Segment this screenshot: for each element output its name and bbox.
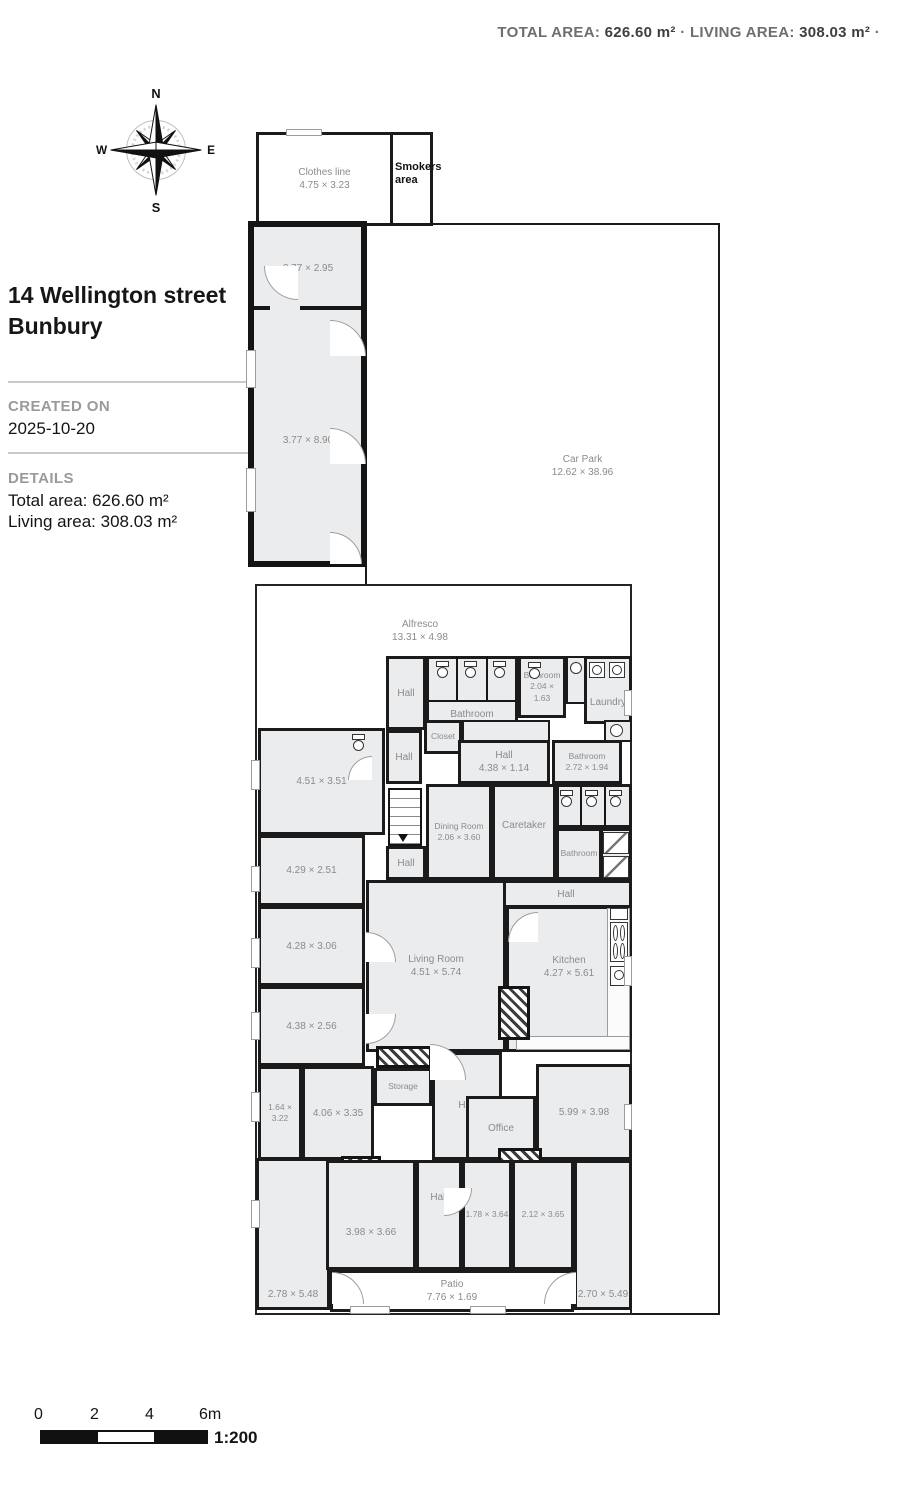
room-429-251: 4.29 × 2.51: [258, 835, 365, 906]
room-niche: [462, 720, 550, 742]
room-hall-kitchen: Hall: [500, 880, 632, 908]
address-line-1: 14 Wellington street: [8, 280, 258, 311]
toilet-icon: [464, 661, 478, 679]
separator-dot: ·: [680, 24, 685, 41]
room-label: Smokers area: [395, 161, 451, 187]
created-on-label: CREATED ON: [8, 398, 110, 415]
room-599-398: 5.99 × 3.98: [536, 1064, 632, 1160]
shower-icon: [603, 856, 629, 878]
chimney-hatch: [498, 986, 530, 1040]
room-bathroom-272: Bathroom2.72 × 1.94: [552, 740, 622, 784]
basin-icon: [610, 724, 623, 737]
room-270-549: 2.70 × 5.49: [574, 1160, 632, 1310]
toilet-icon: [528, 662, 542, 680]
wall: [580, 786, 582, 826]
details-label: DETAILS: [8, 470, 74, 487]
toilet-icon: [609, 790, 623, 808]
compass-east-label: E: [207, 143, 215, 157]
scale-ratio: 1:200: [214, 1428, 257, 1448]
room-storage: Storage: [374, 1068, 432, 1106]
chimney-hatch: [376, 1046, 432, 1068]
room-428-306: 4.28 × 3.06: [258, 906, 365, 986]
window: [251, 1012, 260, 1040]
toilet-icon: [493, 661, 507, 679]
room-278-548: 2.78 × 5.48: [256, 1158, 330, 1310]
compass-rose-icon: N E S W: [95, 84, 217, 216]
room-caretaker: Caretaker: [492, 784, 556, 880]
kitchen-counter: [516, 1036, 630, 1050]
header-area-summary: TOTAL AREA: 626.60 m² · LIVING AREA: 308…: [400, 24, 880, 41]
address-line-2: Bunbury: [8, 311, 258, 342]
room-406-335: 4.06 × 3.35: [302, 1066, 374, 1160]
shower-icon: [603, 832, 629, 854]
room-438-256: 4.38 × 2.56: [258, 986, 365, 1066]
trailing-dot: ·: [875, 24, 880, 41]
room-164-322: 1.64 × 3.22: [258, 1066, 302, 1160]
toilet-icon: [436, 661, 450, 679]
room-hall-stairs: Hall: [386, 846, 426, 880]
toilet-icon: [352, 734, 366, 752]
room-label: Clothes line4.75 × 3.23: [298, 166, 350, 192]
room-dining: Dining Room2.06 × 3.60: [426, 784, 492, 880]
wall: [604, 786, 606, 826]
room-hall-bottom: Hall: [416, 1160, 462, 1270]
room-closet: Closet: [424, 720, 462, 754]
window: [246, 350, 256, 388]
room-hall-438: Hall4.38 × 1.14: [458, 740, 550, 784]
scale-bar: [40, 1430, 208, 1444]
room-hall-top: Hall: [386, 656, 426, 730]
window: [350, 1306, 390, 1314]
compass-west-label: W: [96, 143, 108, 157]
window: [470, 1306, 506, 1314]
living-area-value: 308.03 m²: [799, 24, 870, 41]
window: [624, 1104, 632, 1130]
window: [624, 690, 632, 716]
toilet-icon: [560, 790, 574, 808]
total-area-label: TOTAL AREA:: [497, 24, 600, 41]
stairs-arrow-icon: [398, 834, 408, 842]
washer-icon: [589, 662, 605, 678]
room-smokers-area: Smokers area: [390, 132, 433, 226]
window: [246, 468, 256, 512]
room-bathroom-mid: Bathroom: [556, 828, 602, 880]
room-clothes-line: Clothes line4.75 × 3.23: [256, 132, 393, 226]
total-area-value: 626.60 m²: [605, 24, 676, 41]
room-label: Car Park12.62 × 38.96: [552, 453, 613, 479]
created-on-value: 2025-10-20: [8, 419, 95, 439]
wall: [486, 656, 488, 702]
window: [286, 129, 322, 136]
sink-icon: [610, 908, 628, 920]
living-area-label: LIVING AREA:: [690, 24, 795, 41]
scale-tick-2: 2: [90, 1406, 99, 1424]
room-212-365: 2.12 × 3.65: [512, 1160, 574, 1270]
window: [251, 866, 260, 892]
scale-tick-0: 0: [34, 1406, 43, 1424]
wall: [254, 306, 270, 310]
room-178-364: 1.78 × 3.64: [462, 1160, 512, 1270]
property-address: 14 Wellington street Bunbury: [8, 280, 258, 342]
window: [251, 1092, 260, 1122]
room-hall-mid: Hall: [386, 730, 422, 784]
divider: [8, 452, 252, 454]
wall: [429, 700, 515, 702]
window: [251, 760, 260, 790]
basin-icon: [570, 662, 582, 674]
window: [624, 956, 632, 986]
room-398-366: 3.98 × 3.66: [326, 1160, 416, 1270]
details-living-area: Living area: 308.03 m²: [8, 512, 177, 532]
wall: [456, 656, 458, 702]
scale-tick-6m: 6m: [199, 1406, 221, 1424]
details-total-area: Total area: 626.60 m²: [8, 491, 169, 511]
toilet-icon: [585, 790, 599, 808]
wall: [300, 306, 361, 310]
compass-south-label: S: [152, 200, 161, 215]
divider: [8, 381, 252, 383]
room-label-alfresco: Alfresco13.31 × 4.98: [368, 618, 472, 644]
compass-north-label: N: [151, 86, 160, 101]
window: [251, 938, 260, 968]
washer-icon: [609, 662, 625, 678]
scale-tick-4: 4: [145, 1406, 154, 1424]
room-bathroom-204: Bathroom2.04 × 1.63: [518, 656, 566, 718]
window: [251, 1200, 260, 1228]
sink-basin-icon: [614, 970, 624, 980]
